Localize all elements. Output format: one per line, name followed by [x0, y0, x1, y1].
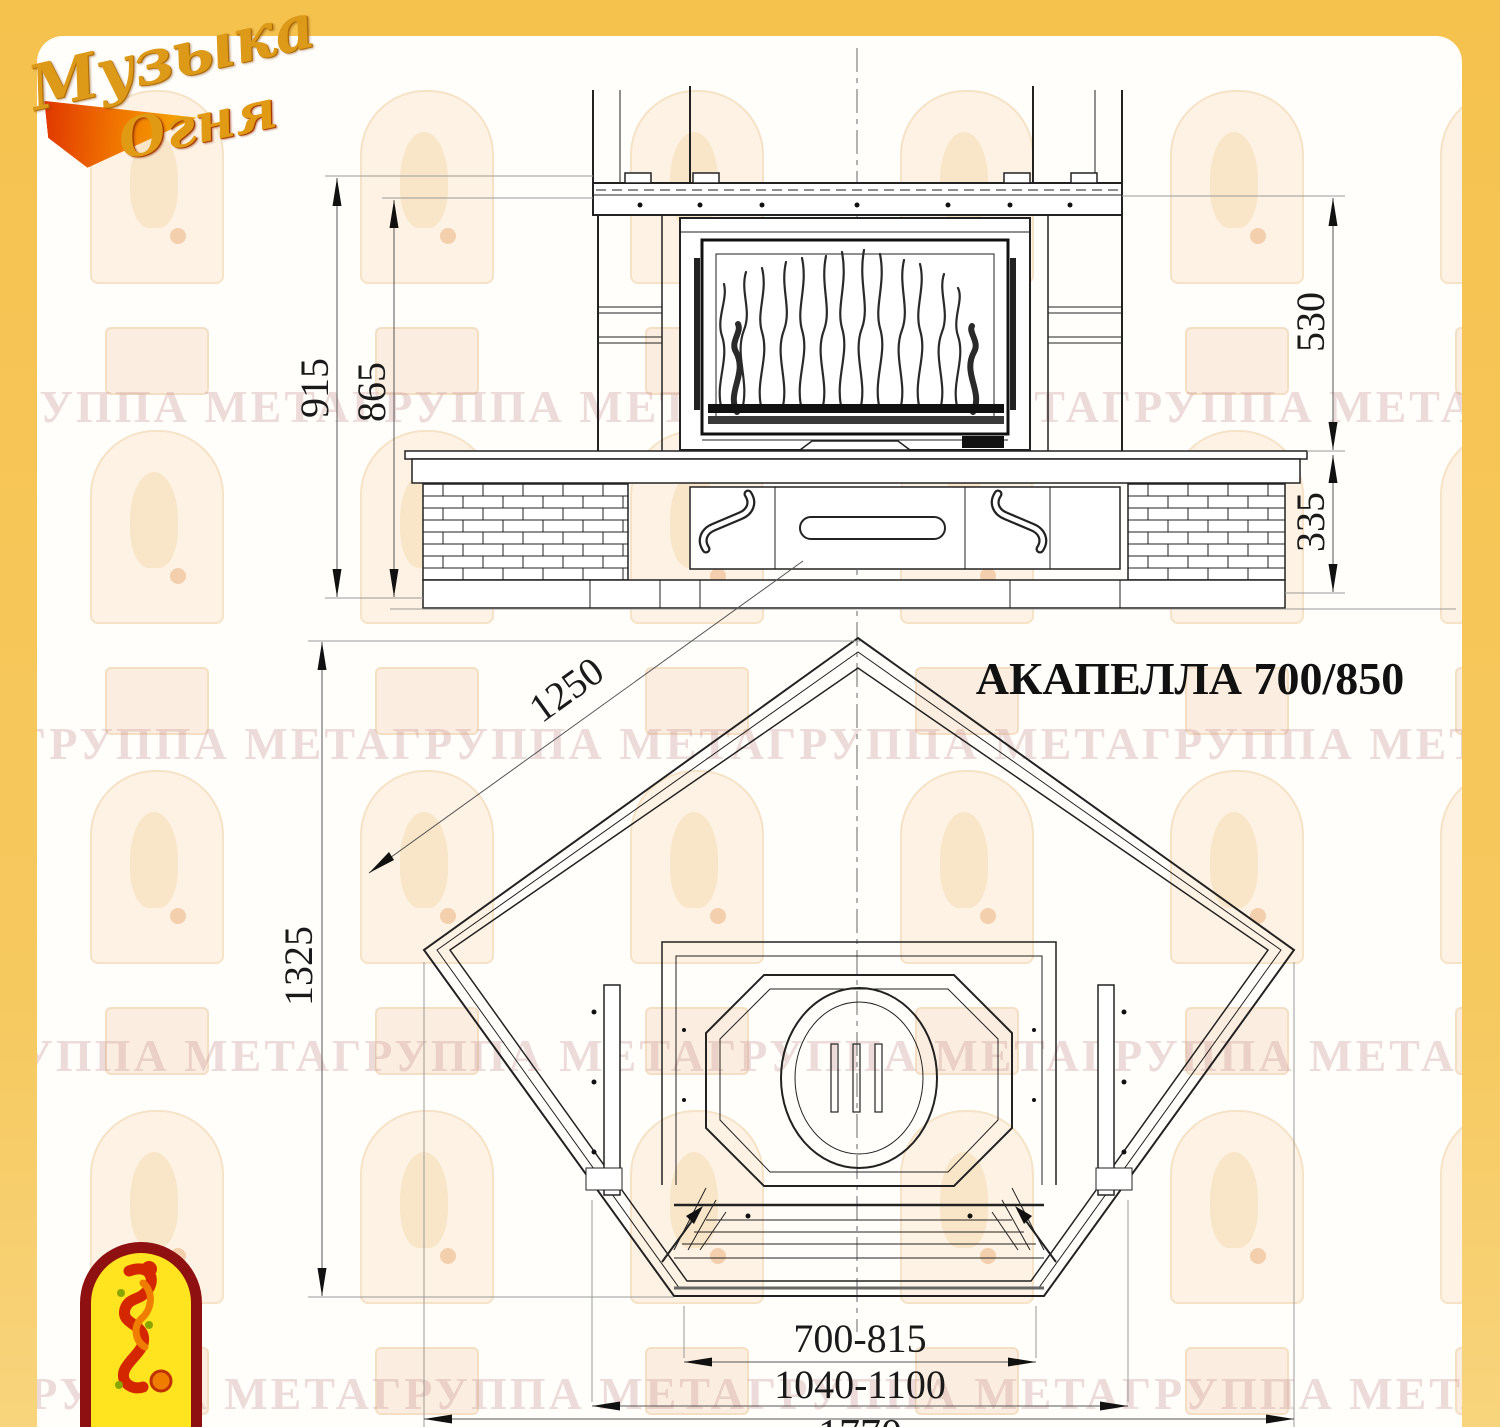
frieze-panel	[690, 487, 1120, 569]
plan-outer-wall	[424, 638, 1294, 1296]
meta-emblem	[80, 1242, 202, 1427]
dim-1250: 1250	[521, 648, 612, 731]
plan-view	[424, 638, 1294, 1296]
technical-drawing: 915 865 530 335 1325 1250 700-815 1040-1…	[0, 0, 1500, 1427]
dim-1770: 1770	[818, 1412, 902, 1427]
catalog-page: ГРУППА МЕТАГРУППА МЕТАГРУППА МЕТАГРУППА …	[0, 0, 1500, 1427]
mantel-shelf	[405, 451, 1307, 483]
plan-casing	[662, 942, 1056, 1185]
brick-panel-left	[423, 484, 628, 580]
vent-notch	[800, 441, 910, 450]
dim-335: 335	[1288, 492, 1333, 552]
left-pillar	[598, 215, 662, 452]
brick-panel-right	[1128, 484, 1285, 580]
ash-drawer	[962, 436, 1004, 448]
plan-mid-wall	[437, 652, 1281, 1289]
dancing-flame-icon	[91, 1253, 191, 1427]
brand-logo: Музыка Огня	[10, 0, 306, 192]
plan-front-steps	[674, 1188, 1044, 1288]
dim-1040-1100: 1040-1100	[774, 1362, 946, 1407]
dim-700-815: 700-815	[793, 1316, 926, 1361]
model-title: АКАПЕЛЛА 700/850	[976, 653, 1405, 704]
dim-1325: 1325	[276, 926, 321, 1006]
plinth	[423, 580, 1285, 608]
firebox	[680, 218, 1030, 450]
dim-915: 915	[292, 358, 337, 418]
dim-865: 865	[349, 362, 394, 422]
plan-firebox	[706, 975, 1012, 1186]
plan-side-wings	[586, 985, 1132, 1195]
plan-leader-arrows	[662, 1206, 1056, 1262]
dim-530: 530	[1288, 292, 1333, 352]
right-pillar	[1048, 215, 1122, 452]
